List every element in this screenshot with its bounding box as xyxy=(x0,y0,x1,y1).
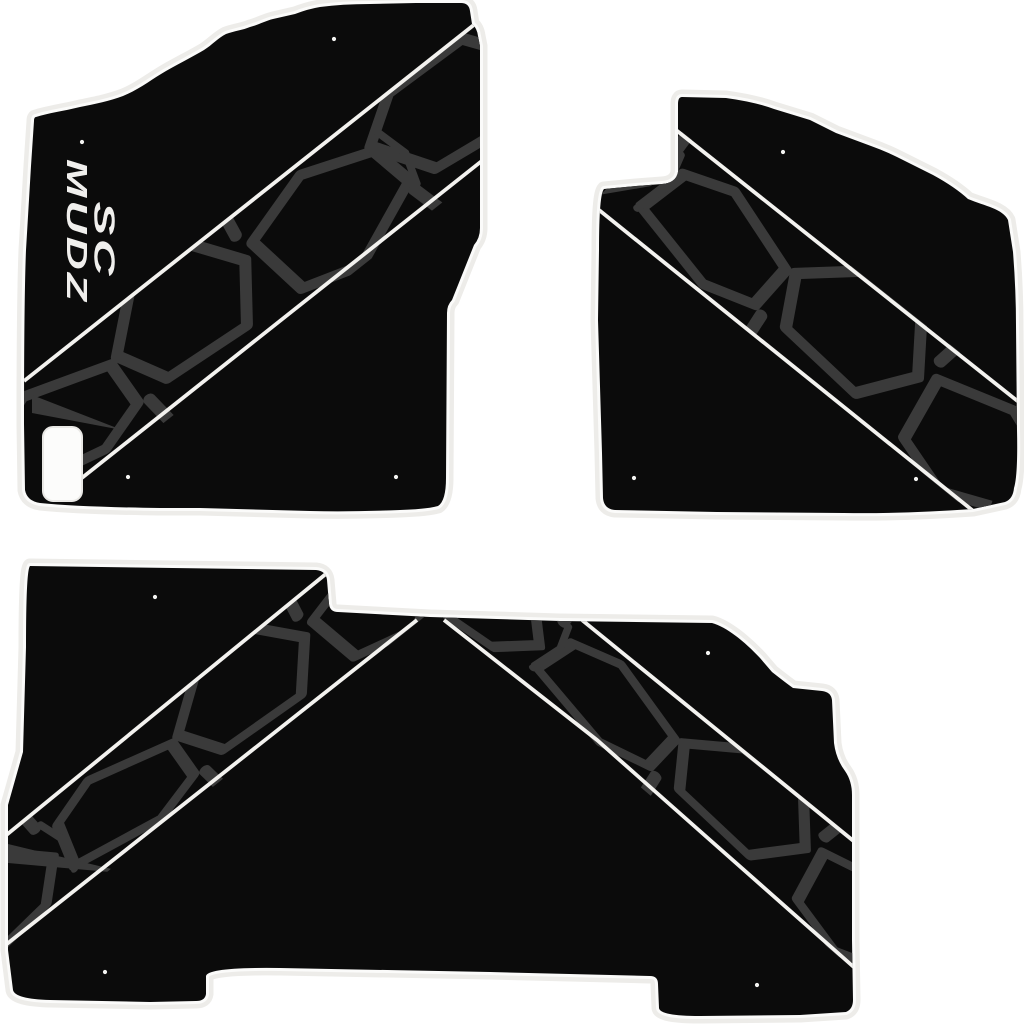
svg-text:MUDZ: MUDZ xyxy=(60,159,92,304)
svg-text:SC: SC xyxy=(88,202,120,280)
